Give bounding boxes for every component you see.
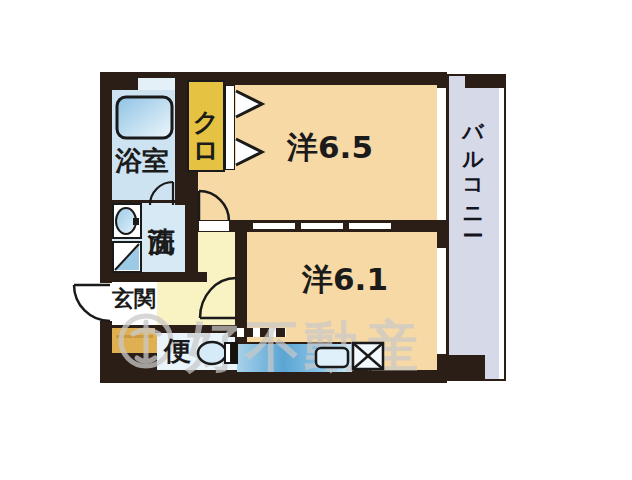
toilet-icon [198, 342, 238, 364]
doors-and-fixtures [0, 0, 632, 480]
bathtub-icon [117, 97, 172, 138]
door-arc-western-6-1 [200, 278, 236, 318]
refrigerator-space-icon [353, 343, 383, 369]
folding-door-chevron-icon [236, 91, 262, 165]
floor-plan: 好不動産 浴室 クロ 洋6.5 洋6.1 洗面 玄関 便 バルコニー [0, 0, 632, 480]
washing-machine-icon [113, 242, 141, 272]
wash-basin-icon [113, 204, 141, 238]
kitchen-sink-icon [316, 348, 348, 367]
door-arc-western-6-5 [199, 191, 229, 221]
door-arc-entrance [74, 285, 110, 321]
door-arc-bath [150, 182, 173, 205]
